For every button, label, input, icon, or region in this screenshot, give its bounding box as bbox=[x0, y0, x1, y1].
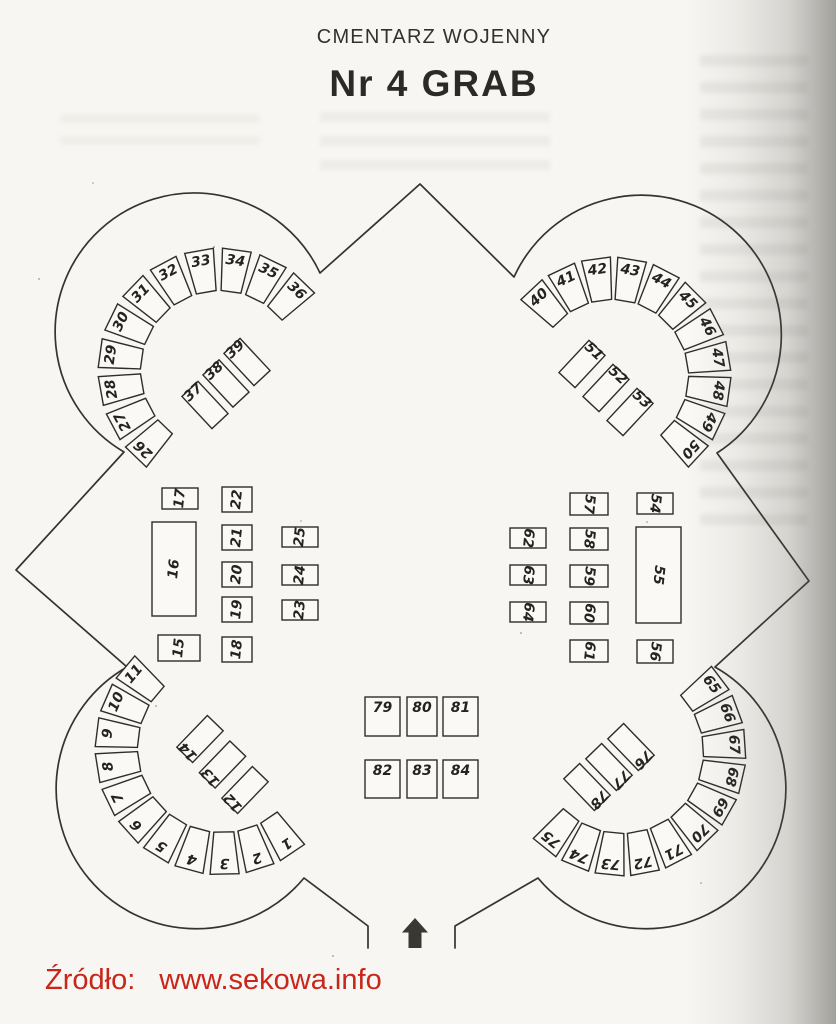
source-url: www.sekowa.info bbox=[159, 964, 381, 996]
grave-number: 19 bbox=[228, 599, 246, 620]
grave-number: 67 bbox=[725, 734, 742, 755]
grave-number: 28 bbox=[102, 378, 121, 400]
lobe-top-right: 4041424344454647484950515253 bbox=[521, 257, 731, 467]
center-right-group: 5455565758596061626364 bbox=[510, 493, 681, 663]
grave-number: 73 bbox=[600, 854, 621, 872]
grave-number: 55 bbox=[649, 564, 667, 585]
grave-number: 25 bbox=[291, 526, 309, 547]
source-line: Źródło:www.sekowa.info bbox=[45, 964, 382, 997]
center-left-group: 1716152221201918252423 bbox=[152, 487, 318, 662]
grave-number: 16 bbox=[165, 558, 183, 579]
grave-number: 54 bbox=[646, 493, 664, 514]
cemetery-plan: 2627282930313233343536373839404142434445… bbox=[0, 0, 836, 1024]
grave-number: 82 bbox=[373, 763, 392, 779]
grave-number: 42 bbox=[586, 261, 608, 280]
grave-number: 61 bbox=[580, 640, 598, 661]
grave-number: 33 bbox=[190, 252, 212, 271]
grave-number: 79 bbox=[373, 700, 393, 716]
grave-number: 60 bbox=[580, 602, 598, 623]
grave-number: 80 bbox=[412, 700, 432, 716]
grave-number: 64 bbox=[519, 601, 537, 622]
grave-number: 81 bbox=[451, 700, 470, 716]
grave-number: 63 bbox=[519, 564, 537, 585]
grave-number: 84 bbox=[451, 763, 470, 779]
grave-number: 15 bbox=[170, 637, 188, 658]
entrance-arrow-icon bbox=[402, 918, 428, 948]
lobe-top-left: 2627282930313233343536373839 bbox=[98, 248, 314, 467]
bottom-center-group: 798081828384 bbox=[365, 697, 478, 798]
grave-number: 34 bbox=[225, 252, 247, 271]
grave-number: 20 bbox=[228, 564, 246, 585]
grave-number: 59 bbox=[580, 565, 598, 586]
grave-number: 29 bbox=[102, 344, 121, 366]
scanned-page: CMENTARZ WOJENNY Nr 4 GRAB 2627282930313… bbox=[0, 0, 836, 1024]
lobe-bottom-left: 1234567891011121314 bbox=[95, 656, 304, 874]
lobe-bottom-right: 6566676869707172737475767778 bbox=[533, 666, 745, 875]
grave-number: 24 bbox=[291, 564, 309, 585]
grave-number: 17 bbox=[171, 488, 189, 509]
grave-number: 23 bbox=[291, 599, 309, 620]
grave-number: 18 bbox=[228, 639, 246, 660]
grave-number: 58 bbox=[580, 528, 598, 549]
grave-number: 56 bbox=[646, 641, 664, 662]
grave-number: 22 bbox=[228, 489, 246, 510]
grave-number: 48 bbox=[709, 379, 728, 402]
grave-number: 57 bbox=[580, 493, 598, 514]
grave-number: 3 bbox=[219, 855, 229, 871]
grave-number: 62 bbox=[519, 527, 537, 548]
grave-number: 21 bbox=[228, 527, 246, 548]
grave-number: 83 bbox=[412, 763, 431, 779]
source-label: Źródło: bbox=[45, 964, 135, 996]
